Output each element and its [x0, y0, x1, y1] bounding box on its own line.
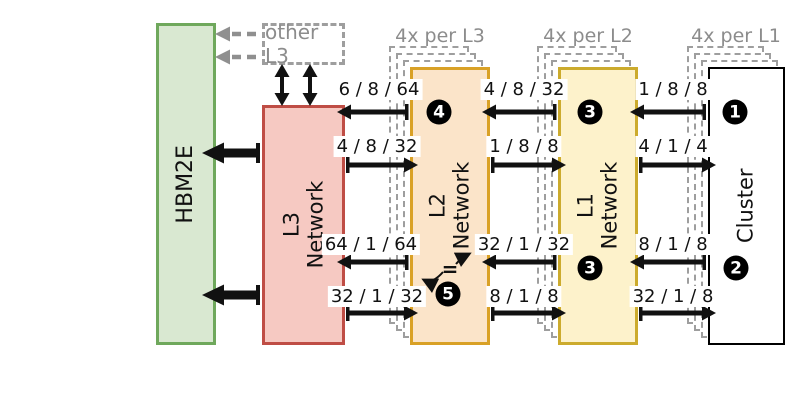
bw-label-l2-l1-row4: 8 / 1 / 8: [486, 286, 561, 307]
cluster-label: Cluster: [735, 169, 759, 244]
l3-network-block: L3 Network: [262, 105, 345, 345]
callout-5: 5: [436, 282, 461, 307]
bw-label-l2-l1-row2: 1 / 8 / 8: [486, 136, 561, 157]
bw-label-l3-l2-row3: 64 / 1 / 64: [322, 234, 420, 255]
bw-label-l1-cluster-row2: 4 / 1 / 4: [635, 136, 710, 157]
bw-label-l2-l1-row1: 4 / 8 / 32: [481, 79, 568, 100]
arrow-l3-other-l3-1: [275, 64, 290, 106]
cluster-multiplicity-label: 4x per L1: [691, 26, 781, 46]
l2-network-label: L2 Network: [426, 162, 473, 250]
bw-label-l3-l2-row1: 6 / 8 / 64: [336, 79, 423, 100]
callout-2: 2: [724, 256, 749, 281]
l3-network-label: L3 Network: [280, 181, 327, 269]
callout-3-top: 3: [578, 100, 603, 125]
arrow-l3-other-l3-2: [303, 64, 318, 106]
arrow-other-l3-to-hbm-2: [215, 50, 256, 65]
l1-network-label: L1 Network: [574, 162, 621, 250]
callout-1: 1: [723, 100, 748, 125]
hbm2e-label: HBM2E: [174, 145, 199, 224]
bw-label-l2-l1-row3: 32 / 1 / 32: [475, 234, 573, 255]
other-l3-box: other L3: [262, 23, 345, 65]
l1-multiplicity-label: 4x per L2: [543, 26, 633, 46]
hbm2e-block: HBM2E: [156, 23, 216, 345]
bw-label-l3-l2-row2: 4 / 8 / 32: [334, 136, 421, 157]
bw-label-l1-cluster-row3: 8 / 1 / 8: [635, 234, 710, 255]
other-l3-label: other L3: [265, 20, 342, 68]
memory-hierarchy-diagram: HBM2E L3 Network L2 Network L1 Network C…: [0, 0, 789, 402]
bw-label-l1-cluster-row4: 32 / 1 / 8: [630, 286, 717, 307]
l2-multiplicity-label: 4x per L3: [395, 26, 485, 46]
arrow-other-l3-to-hbm-1: [215, 27, 256, 42]
bw-label-l3-l2-row4: 32 / 1 / 32: [328, 286, 426, 307]
equals-annotation: =: [442, 257, 459, 281]
callout-3-bottom: 3: [578, 256, 603, 281]
callout-4: 4: [427, 100, 452, 125]
bw-label-l1-cluster-row1: 1 / 8 / 8: [635, 79, 710, 100]
